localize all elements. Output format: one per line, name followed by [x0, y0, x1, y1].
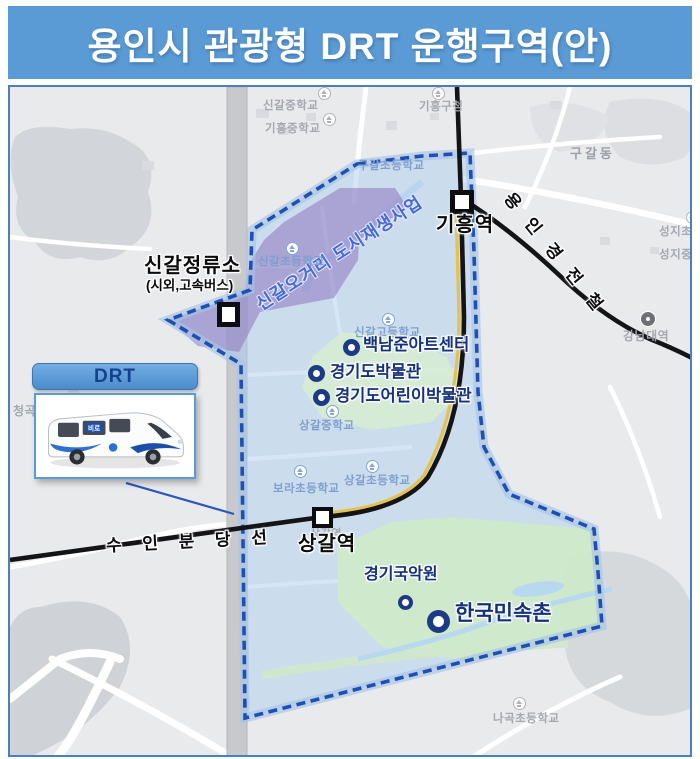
school-icon [366, 460, 379, 473]
school-icon [323, 113, 336, 126]
singal-terminal-label: 신갈정류소 [144, 255, 241, 277]
poi-label-gugak-center: 경기국악원 [364, 566, 438, 584]
building-icon [432, 87, 445, 100]
giheung-station-label: 기흥역 [436, 214, 494, 236]
drt-inset-header: DRT [32, 363, 198, 390]
drt-bus-illustration: 비로 [38, 398, 192, 474]
poi-dot-gyeonggi-museum [308, 365, 325, 382]
map-label-seongji-elem: 성지초등학교 [659, 226, 692, 239]
map-label-sanggal-elem: 상갈초등학교 [344, 475, 410, 488]
singal-terminal-marker [217, 302, 240, 327]
drt-inset-title: DRT [94, 366, 136, 388]
poi-dot-namjunepaik [343, 339, 360, 356]
bus-headlight [178, 440, 183, 444]
poi-label-namjunepaik: 백남준아트센터 [363, 336, 469, 354]
everline-station-icon [640, 311, 656, 327]
map-label-bora-elem: 보라초등학교 [273, 483, 339, 496]
bus-window [58, 423, 79, 437]
bus-brand-text: 비로 [88, 423, 100, 432]
school-icon [513, 697, 526, 710]
poi-dot-gugak-center [398, 595, 413, 610]
school-icon [286, 242, 299, 255]
poi-label-folk-village: 한국민속촌 [455, 602, 552, 625]
map-label-nagok-elem: 나곡초등학교 [493, 713, 559, 726]
map-label-gangnam-univ-station: 강남대역 [623, 330, 669, 343]
map-label-giheung-middle: 기흥중학교 [265, 123, 320, 136]
map-label-giheung-office: 기흥구청 [419, 101, 463, 114]
school-icon [382, 313, 395, 326]
bus-window [109, 419, 130, 432]
sanggal-station-marker [312, 507, 333, 528]
sanggal-station-label: 상갈역 [298, 533, 356, 555]
map-label-cheonggok: 청곡 [13, 405, 36, 418]
map-label-singal-middle: 신갈중학교 [263, 100, 318, 113]
school-icon [326, 405, 339, 418]
school-icon [294, 465, 307, 478]
map-canvas: 신갈오거리 도시재생사업 용 인 경 전 철 수 인 분 당 선 신갈중학교 기… [8, 85, 692, 757]
title-bar: 용인시 관광형 DRT 운행구역(안) [8, 6, 692, 79]
drt-inset-bus-image: 비로 [34, 393, 196, 479]
poi-label-children-museum: 경기도어린이박물관 [335, 387, 472, 405]
singal-terminal-sublabel: (시외,고속버스) [146, 279, 233, 294]
school-icon [318, 87, 331, 100]
map-label-gugal-dong: 구갈동 [570, 147, 615, 161]
map-label-seongji-middle: 성지중학교 [659, 249, 692, 262]
poi-dot-children-museum [313, 389, 330, 406]
map-label-singal-elem: 신갈초등학교 [258, 256, 324, 269]
map-label-gugal-elem: 구갈초등학교 [358, 160, 424, 173]
bus-swoosh-dot [109, 443, 118, 452]
poi-dot-folk-village [427, 610, 450, 633]
giheung-station-marker [450, 190, 474, 214]
slide: 용인시 관광형 DRT 운행구역(안) [0, 0, 700, 759]
poi-label-gyeonggi-museum: 경기도박물관 [330, 363, 421, 381]
page-title: 용인시 관광형 DRT 운행구역(안) [88, 16, 613, 70]
map-label-sanggal-middle: 상갈중학교 [299, 420, 354, 433]
school-icon [686, 211, 692, 224]
